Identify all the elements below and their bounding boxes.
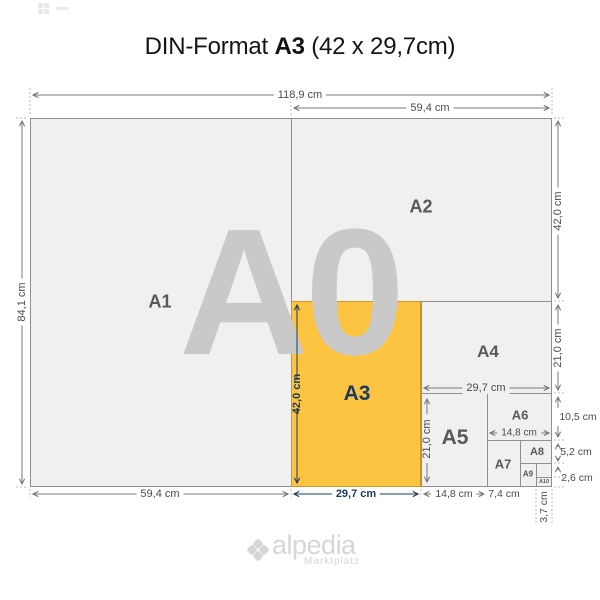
divider-a9-a10 [536, 463, 537, 487]
dim-a2-height: 42,0 cm [552, 187, 564, 234]
sheet-label-a7: A7 [495, 457, 512, 472]
dim-a3-height: 42,0 cm [291, 374, 303, 414]
page-title: DIN-Format A3 (42 x 29,7cm) [0, 33, 600, 61]
divider-a3-a4 [421, 301, 422, 487]
sheet-label-a5: A5 [442, 426, 469, 450]
title-format: A3 [274, 33, 304, 60]
dash-icon [56, 7, 69, 10]
sheet-label-a3: A3 [344, 382, 371, 406]
dim-a5-height: 21,0 cm [421, 419, 433, 458]
sheet-label-a4: A4 [477, 342, 499, 362]
header-icons [38, 3, 69, 14]
dim-total-height: 84,1 cm [16, 278, 28, 325]
dim-a8-height: 5,2 cm [560, 446, 592, 458]
sheet-label-a6: A6 [512, 408, 529, 423]
dim-a4-height: 21,0 cm [552, 324, 564, 371]
divider-a10-top [536, 477, 552, 478]
dim-total-width: 118,9 cm [274, 89, 326, 101]
title-size-note: (42 x 29,7cm) [311, 33, 455, 60]
sheet-label-a9: A9 [523, 470, 533, 479]
dim-a2-width: 59,4 cm [406, 102, 453, 114]
dim-a5-width: 14,8 cm [431, 488, 476, 500]
sheet-label-a10: A10 [539, 479, 549, 485]
dim-a6-height: 10,5 cm [559, 411, 596, 423]
sheet-label-a8: A8 [530, 446, 544, 458]
dim-a3-width: 29,7 cm [332, 488, 380, 500]
logo-tagline: Marktplatz [304, 556, 360, 567]
logo-flower-icon [248, 540, 268, 560]
dim-a7-width: 7,4 cm [484, 488, 524, 500]
apps-grid-icon[interactable] [38, 3, 49, 14]
dim-a10-width: 3,7 cm [538, 491, 550, 523]
dim-a6-width: 14,8 cm [497, 428, 541, 439]
sheet-label-a2: A2 [409, 197, 432, 218]
watermark-a0: A0 [179, 203, 401, 383]
dim-a10-height: 2,6 cm [561, 472, 593, 484]
sheet-label-a1: A1 [148, 292, 171, 313]
dim-a1-width: 59,4 cm [136, 488, 183, 500]
title-prefix: DIN-Format [145, 33, 268, 60]
dim-a4-width: 29,7 cm [462, 382, 509, 394]
